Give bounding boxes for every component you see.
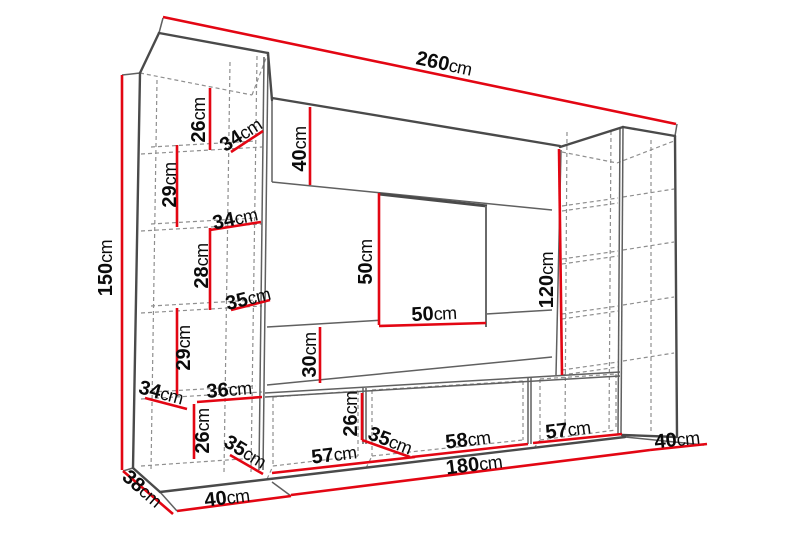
dimension-line-bench-left-depth-35 — [230, 455, 263, 474]
dimension-line-bench-width-180 — [291, 450, 650, 495]
tv-panel — [379, 194, 487, 326]
furniture-dimension-diagram: 260cm150cm26cm34cm40cm29cm34cm28cm35cm50… — [0, 0, 800, 533]
wall-unit-drawing — [0, 0, 800, 533]
dimension-line-floor-left-40 — [177, 496, 291, 511]
dimension-line-right-cabinet-120 — [559, 149, 562, 375]
dimension-line-left-depth-34a — [231, 131, 263, 152]
dimension-line-left-bottom-depth-34 — [145, 398, 187, 409]
dimension-line-floor-right-40 — [650, 444, 707, 450]
dimension-line-left-depth-34b — [210, 222, 261, 230]
dimension-line-overall-width — [163, 17, 676, 124]
